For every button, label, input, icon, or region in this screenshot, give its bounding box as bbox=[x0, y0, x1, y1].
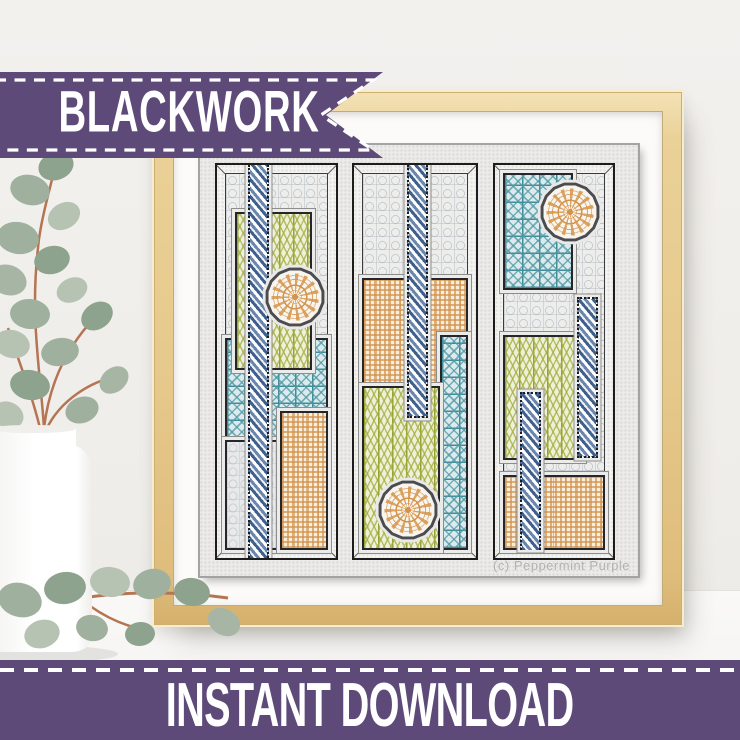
braid-band bbox=[520, 392, 541, 550]
braid-band bbox=[577, 297, 598, 458]
stitch-panel-3 bbox=[493, 163, 615, 560]
mitre-line bbox=[605, 165, 614, 174]
mitre-line bbox=[353, 549, 362, 558]
mitre-line bbox=[468, 165, 477, 174]
plant-leaves bbox=[0, 147, 134, 434]
frame-mat: (c) Peppermint Purple bbox=[173, 111, 663, 606]
banner-label-wrap: INSTANT DOWNLOAD bbox=[0, 660, 740, 740]
product-image: (c) Peppermint Purple bbox=[0, 0, 740, 740]
mitre-line bbox=[605, 549, 614, 558]
mitre-line bbox=[494, 549, 503, 558]
block-orange bbox=[503, 475, 605, 550]
ribbon-label: BLACKWORK bbox=[58, 84, 285, 142]
banner-label: INSTANT DOWNLOAD bbox=[166, 675, 574, 737]
eucalyptus-plant bbox=[0, 128, 245, 673]
instant-download-banner: INSTANT DOWNLOAD bbox=[0, 660, 740, 740]
copyright-watermark: (c) Peppermint Purple bbox=[493, 558, 630, 573]
stitched-artwork: (c) Peppermint Purple bbox=[200, 145, 638, 576]
mitre-line bbox=[328, 165, 337, 174]
mitre-line bbox=[468, 549, 477, 558]
blackwork-ribbon: BLACKWORK bbox=[0, 71, 392, 159]
block-teal bbox=[440, 335, 468, 550]
mitre-line bbox=[328, 549, 337, 558]
braid-band bbox=[248, 165, 269, 558]
vase bbox=[0, 425, 92, 652]
stitch-panel-2 bbox=[352, 163, 478, 560]
mitre-line bbox=[353, 165, 362, 174]
block-olive bbox=[503, 335, 583, 460]
block-orange bbox=[280, 411, 328, 550]
braid-band bbox=[407, 165, 428, 418]
